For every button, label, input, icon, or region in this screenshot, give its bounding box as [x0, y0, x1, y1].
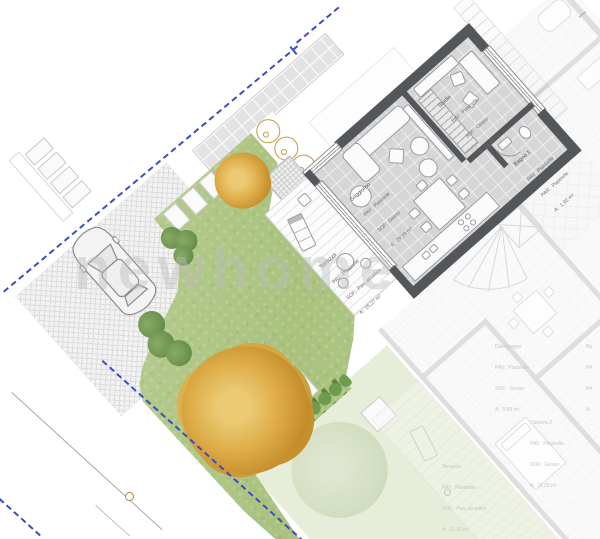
property-boundary: [0, 498, 41, 536]
ghost-label-disimpegno: Disimpegno PAV: Piastrelle SOF: Gesso A:…: [495, 330, 529, 428]
site-plan: Soggiorno PAV: Piastrelle SOF: Gesso A: …: [0, 0, 600, 539]
watermark: newhome: [74, 234, 400, 303]
survey-marker: [125, 492, 134, 501]
survey-line: [11, 392, 162, 530]
ghost-label-camera2: Camera 2 PAV: Piastrelle SOF: Gesso A: 1…: [530, 406, 564, 504]
ghost-point-marker: [444, 489, 451, 496]
road-edge-line: [95, 505, 130, 537]
ghost-label-bagno-clipped: Ba PA PA A:: [586, 330, 592, 428]
ottoman: [388, 148, 404, 164]
